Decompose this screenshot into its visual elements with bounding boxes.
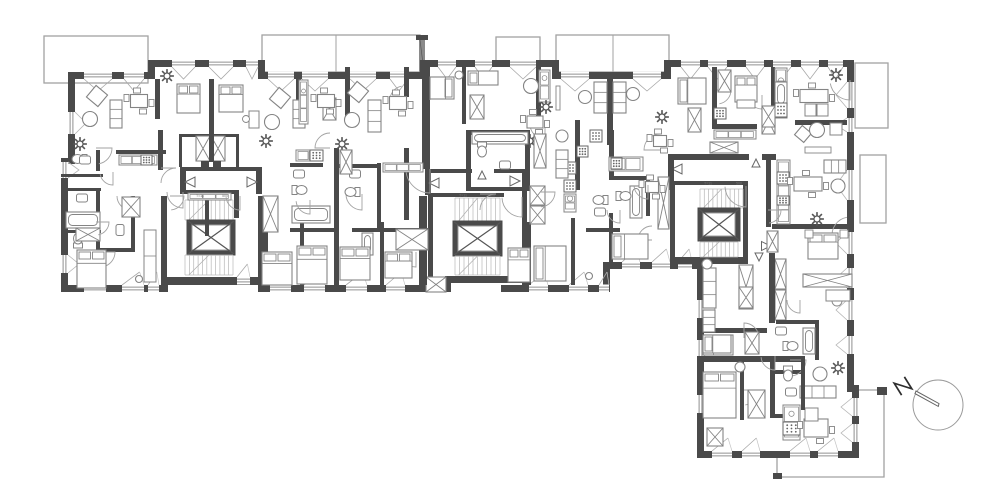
svg-text:T=11: T=11	[459, 194, 467, 198]
svg-text:T=11: T=11	[704, 182, 712, 186]
svg-text:T=11: T=11	[196, 194, 204, 198]
svg-text:500: 500	[489, 194, 495, 198]
svg-text:500: 500	[222, 194, 228, 198]
svg-text:500: 500	[736, 182, 742, 186]
